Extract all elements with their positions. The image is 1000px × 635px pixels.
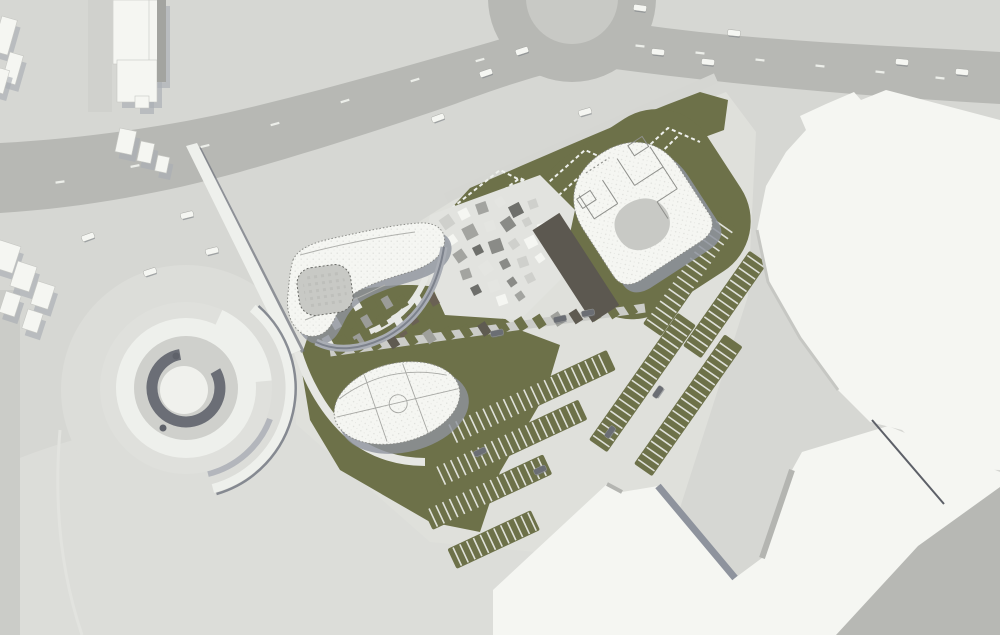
center-pavilion [160, 366, 208, 414]
courtyard-group [295, 262, 355, 317]
car [727, 29, 741, 37]
entry-marker-south [160, 425, 167, 432]
site-plan-canvas [0, 0, 1000, 635]
northwest-minor-road [88, 0, 112, 112]
car [701, 58, 715, 66]
car-body [727, 29, 741, 36]
car-body [955, 68, 969, 75]
car [955, 68, 969, 76]
context-tower-side-face [157, 0, 166, 82]
car [651, 48, 665, 56]
courtyard-paving [302, 269, 349, 310]
left-edge-road [0, 290, 20, 635]
car-body [895, 58, 909, 65]
site-plan [0, 0, 1000, 635]
car [895, 58, 909, 66]
car-body [701, 58, 715, 65]
car-body [651, 48, 665, 55]
context-building [135, 96, 149, 108]
context-building [117, 60, 157, 102]
entry-marker-north [173, 353, 180, 360]
